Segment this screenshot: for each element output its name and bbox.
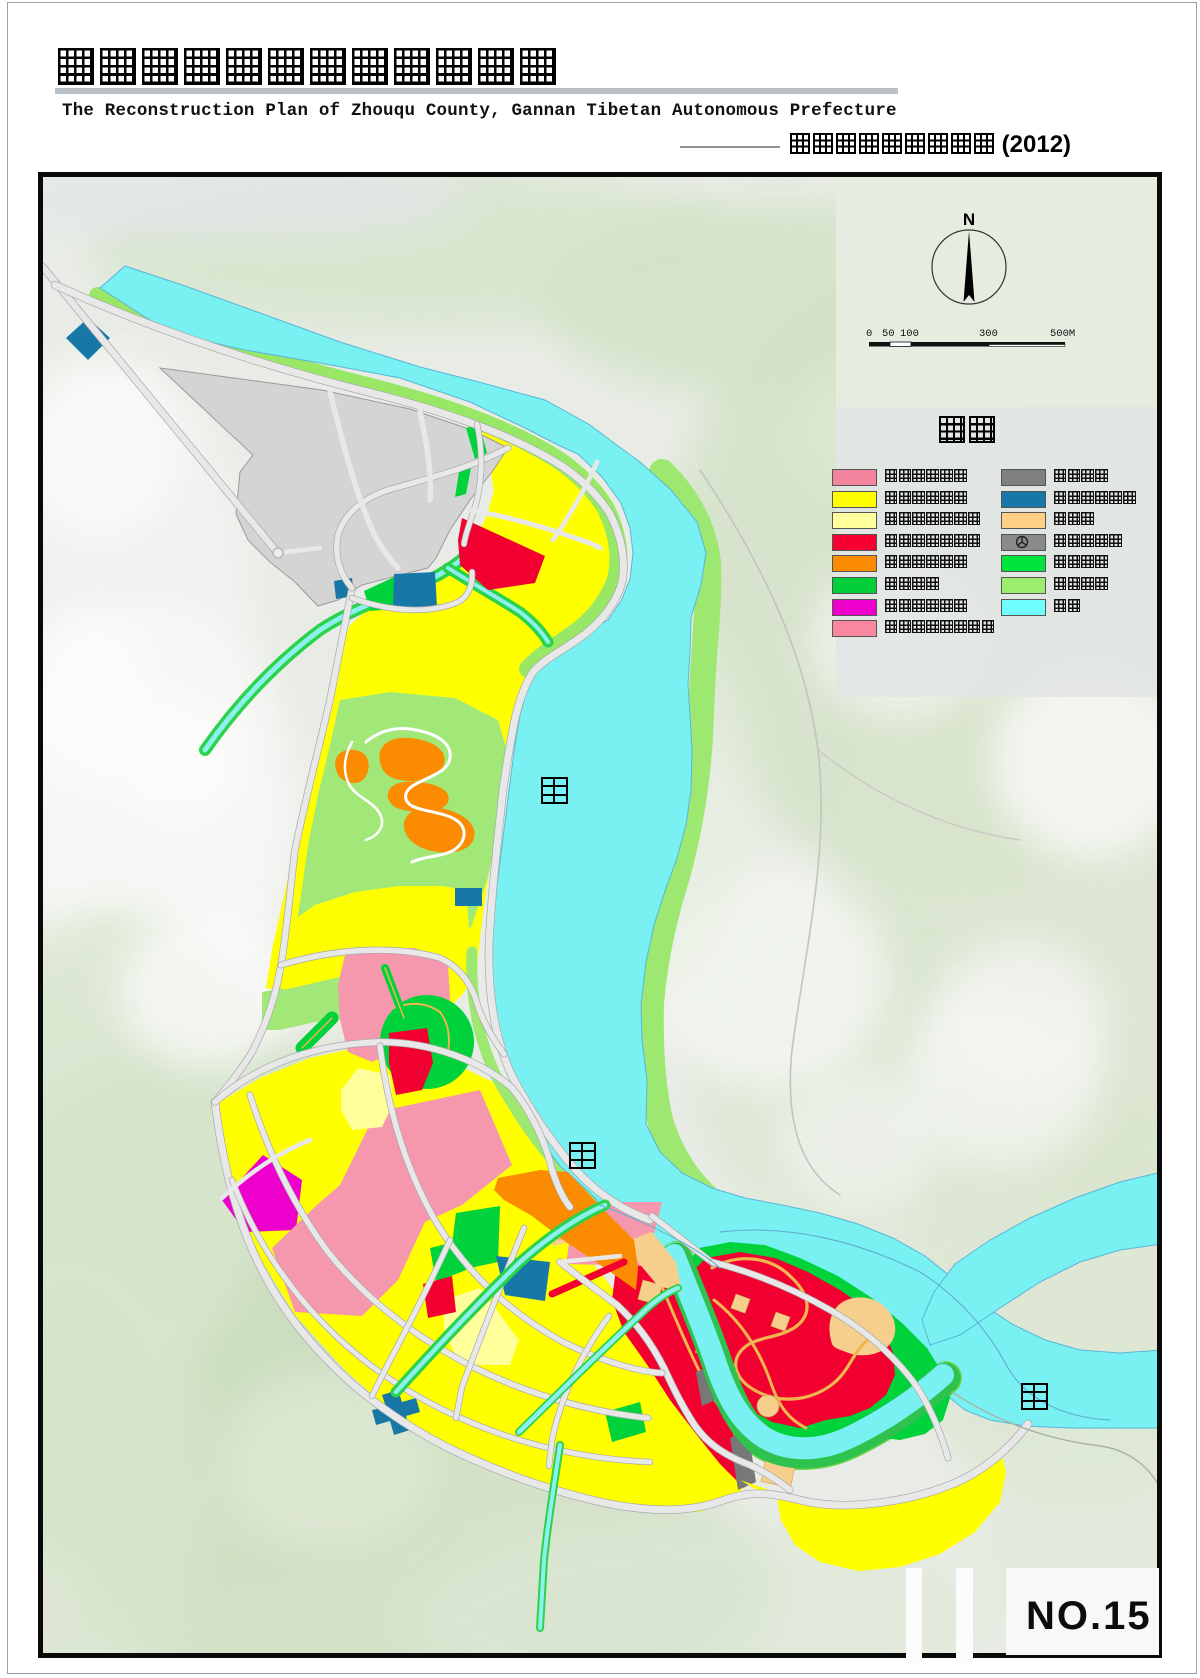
svg-text:100: 100 (900, 328, 919, 340)
svg-text:50: 50 (882, 328, 895, 340)
svg-text:0: 0 (866, 328, 872, 340)
svg-text:500M: 500M (1050, 328, 1075, 340)
svg-text:N: N (963, 210, 975, 229)
svg-text:300: 300 (979, 328, 998, 340)
